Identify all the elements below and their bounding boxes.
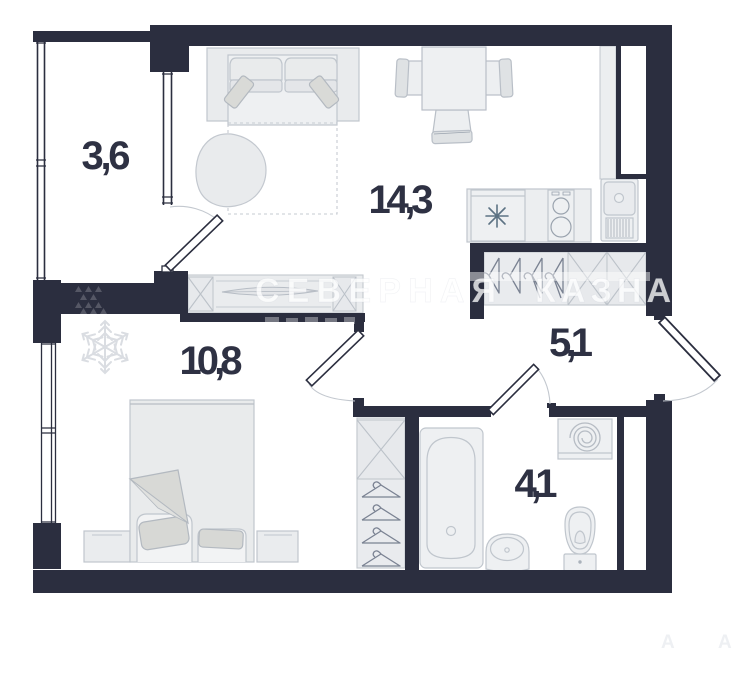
svg-text:А: А <box>718 632 732 653</box>
svg-text:14,3: 14,3 <box>369 178 434 222</box>
svg-text:А: А <box>661 632 675 653</box>
svg-text:5,1: 5,1 <box>549 321 593 365</box>
svg-text:КАЗНА: КАЗНА <box>535 272 671 310</box>
svg-text:10,8: 10,8 <box>180 339 243 383</box>
svg-text:4,1: 4,1 <box>515 462 558 506</box>
svg-text:3,6: 3,6 <box>82 134 131 178</box>
